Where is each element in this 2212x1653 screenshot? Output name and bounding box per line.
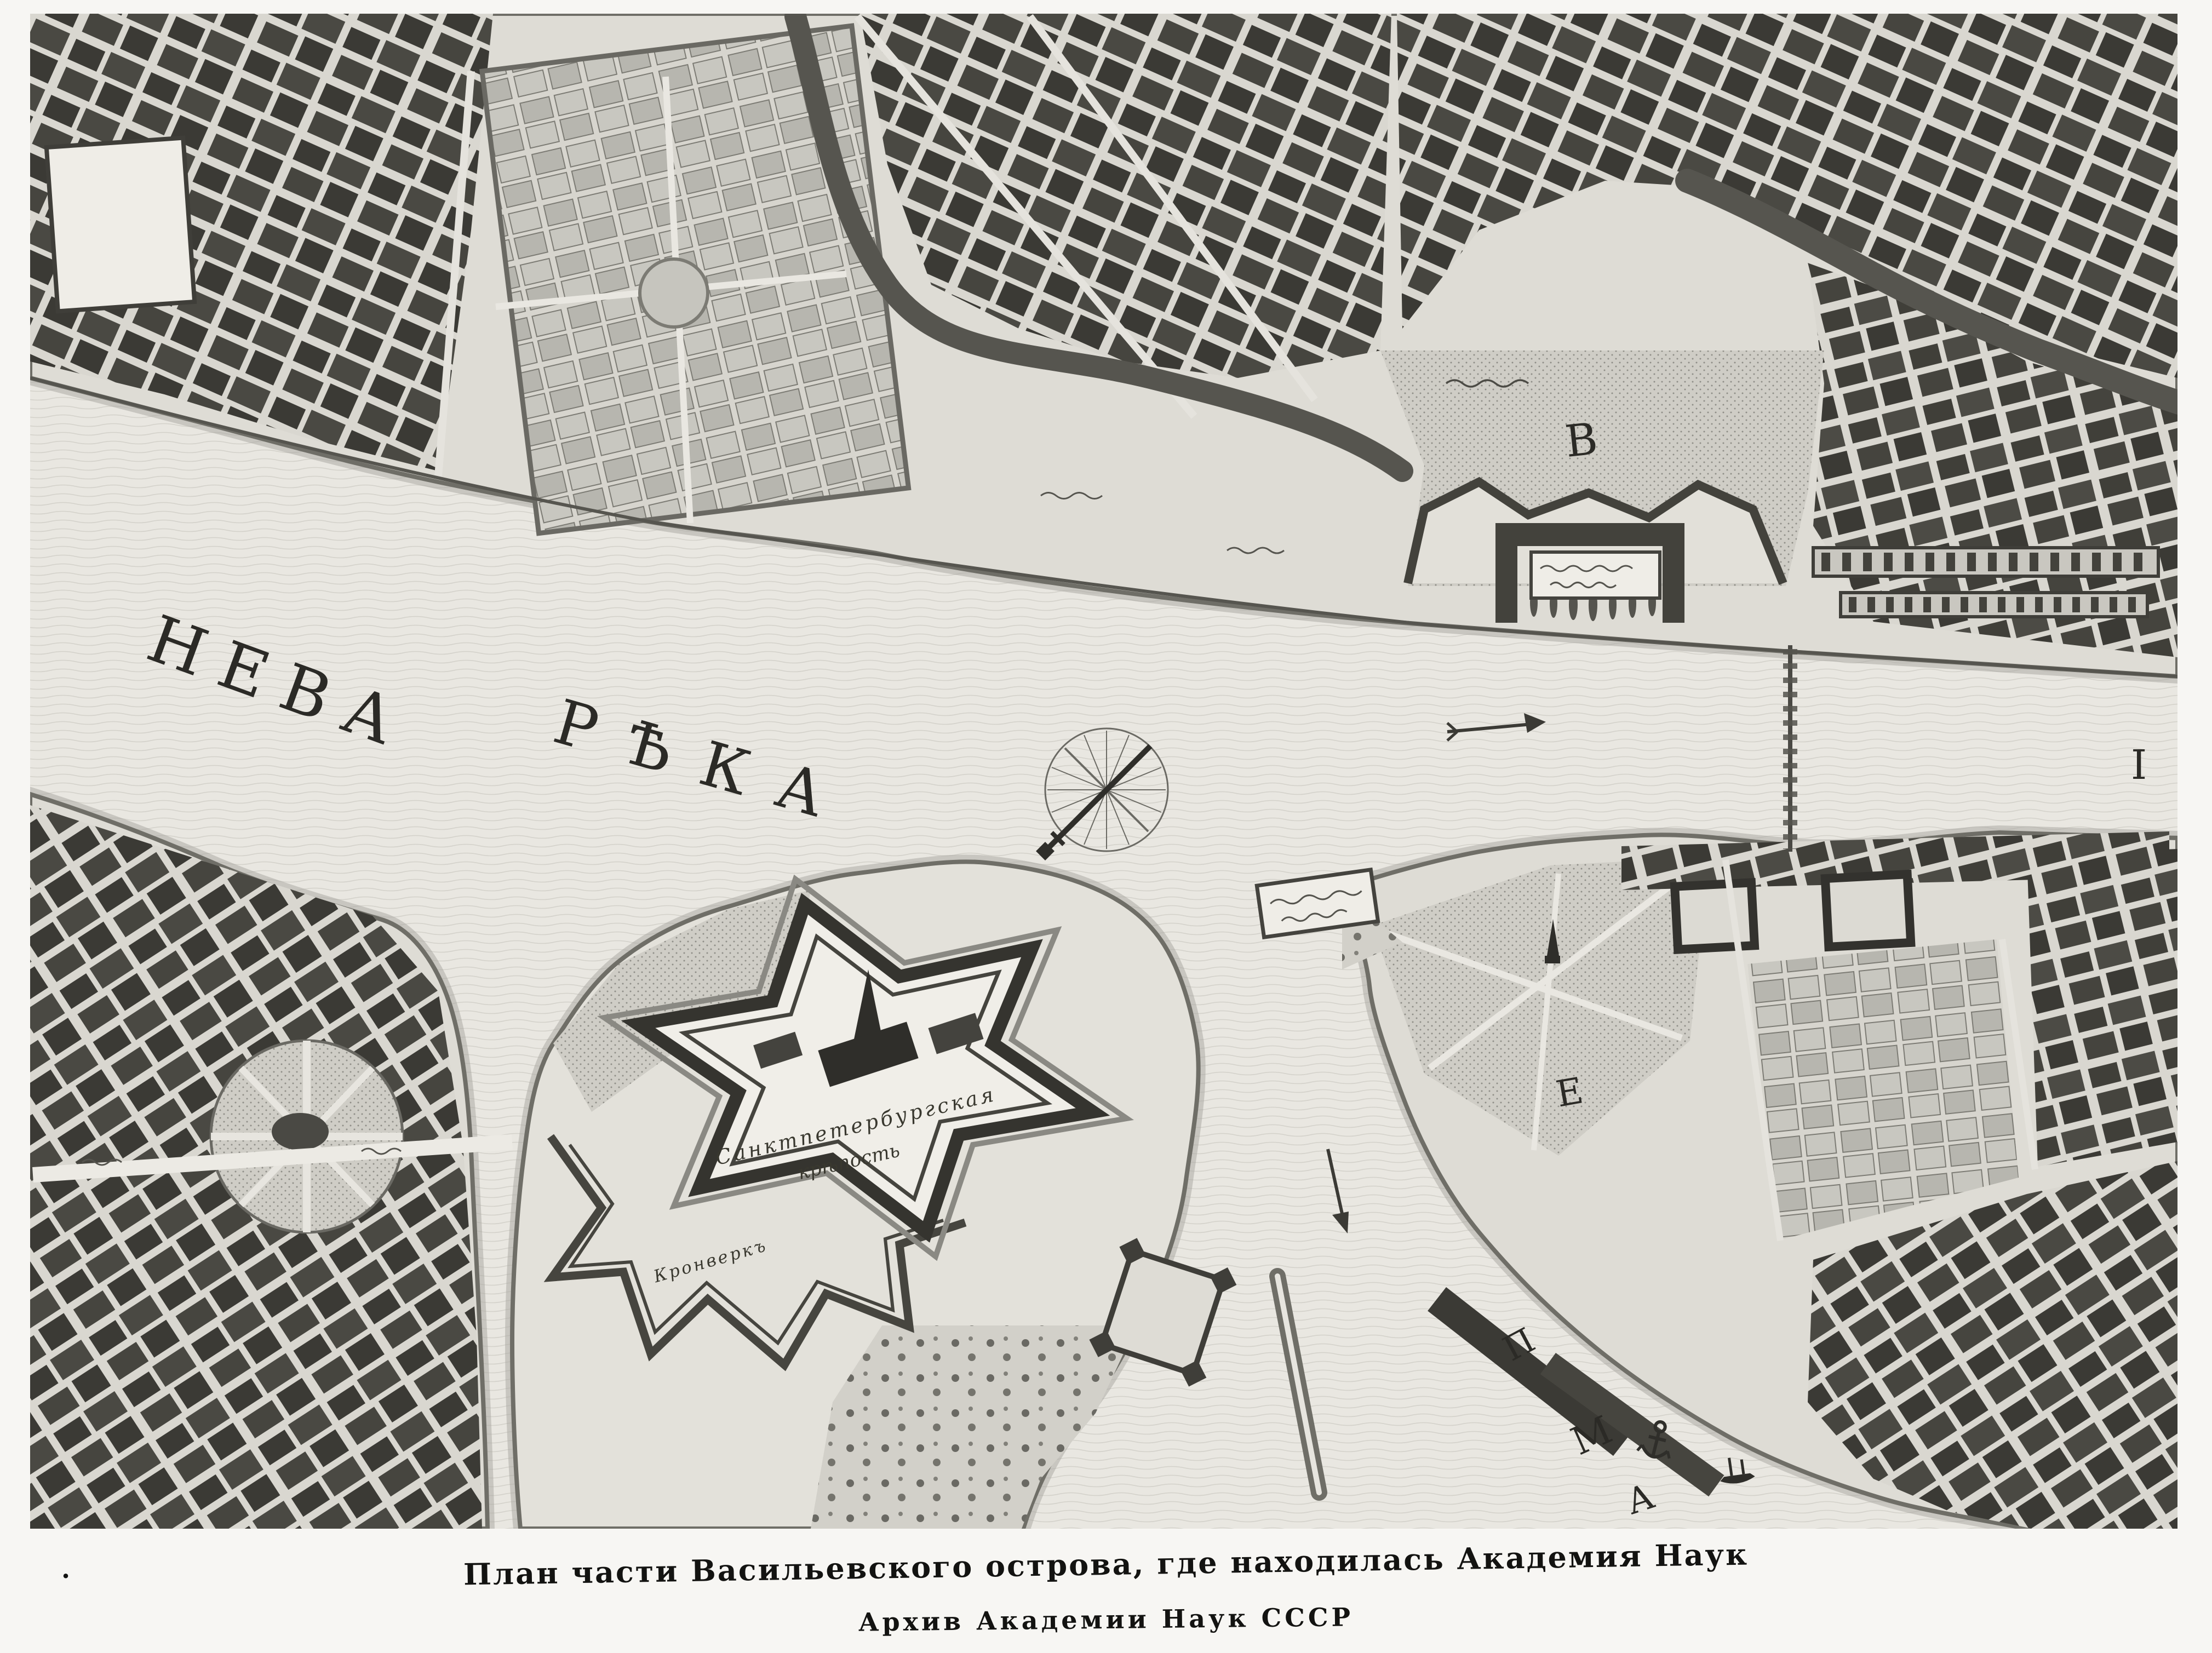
admiralty-plaque (1531, 552, 1660, 598)
marker-B: В (1563, 413, 1600, 467)
stray-ink-dot: . (61, 1554, 70, 1584)
island-blocks-east (2027, 849, 2177, 1167)
book-page: Санктпетербургская крѣпость Кронверкъ (0, 0, 2212, 1653)
formal-garden (482, 26, 909, 533)
engraved-map: Санктпетербургская крѣпость Кронверкъ (0, 0, 2212, 1653)
radial-park (211, 1041, 403, 1232)
palace-compound (47, 138, 194, 312)
courtyard-building (1825, 874, 1911, 947)
marker-I: I (2131, 742, 2147, 789)
courtyard-building (1675, 882, 1755, 949)
pond (272, 1113, 329, 1150)
